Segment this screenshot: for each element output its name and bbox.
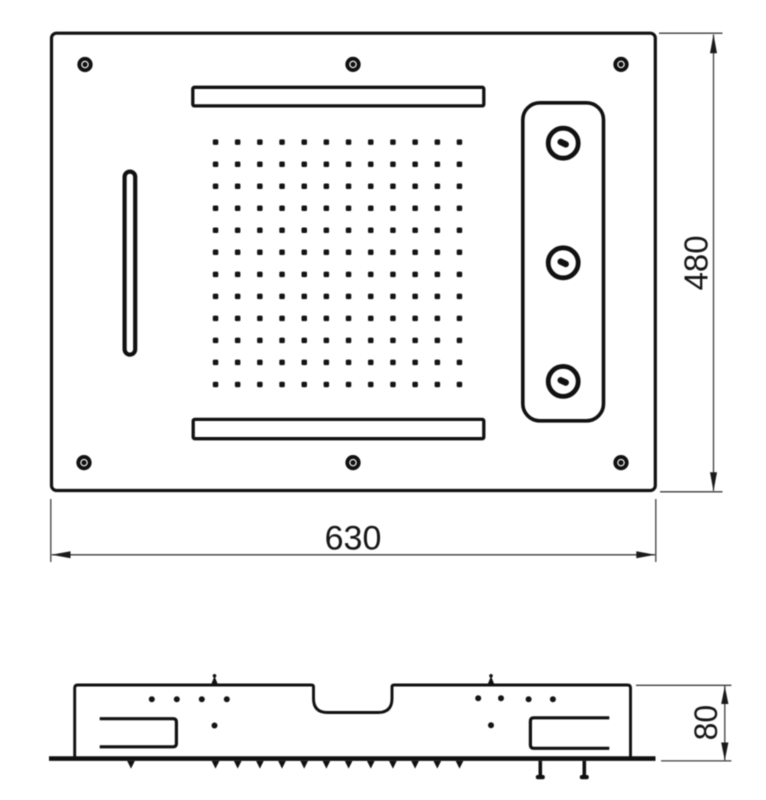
svg-text:630: 630: [325, 519, 382, 557]
svg-text:80: 80: [688, 705, 724, 741]
svg-text:480: 480: [677, 235, 714, 290]
